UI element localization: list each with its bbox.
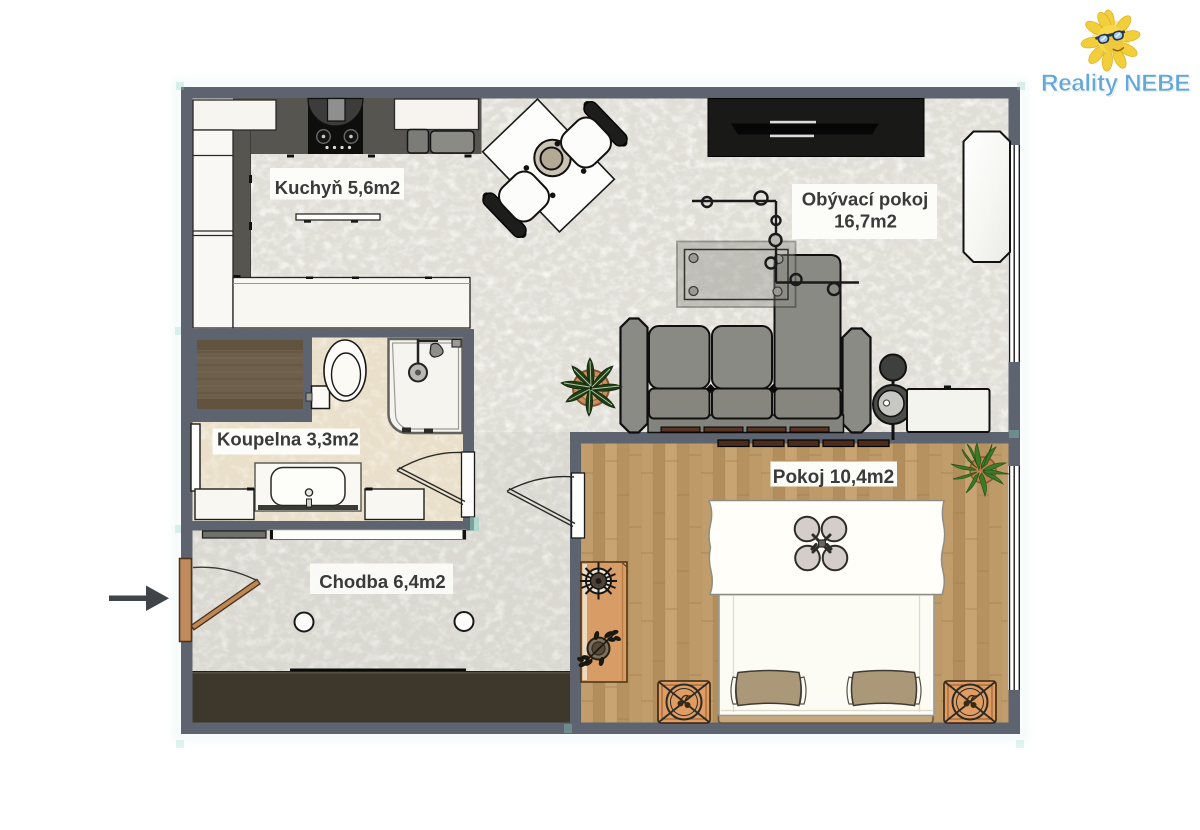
svg-text:Obývací pokoj: Obývací pokoj: [802, 189, 928, 210]
svg-text:Kuchyň 5,6m2: Kuchyň 5,6m2: [275, 177, 400, 198]
svg-text:16,7m2: 16,7m2: [834, 211, 897, 232]
svg-text:Koupelna 3,3m2: Koupelna 3,3m2: [217, 429, 359, 450]
svg-text:Reality NEBE: Reality NEBE: [1041, 70, 1190, 97]
svg-text:Pokoj 10,4m2: Pokoj 10,4m2: [773, 467, 894, 488]
svg-text:Chodba 6,4m2: Chodba 6,4m2: [319, 571, 445, 592]
